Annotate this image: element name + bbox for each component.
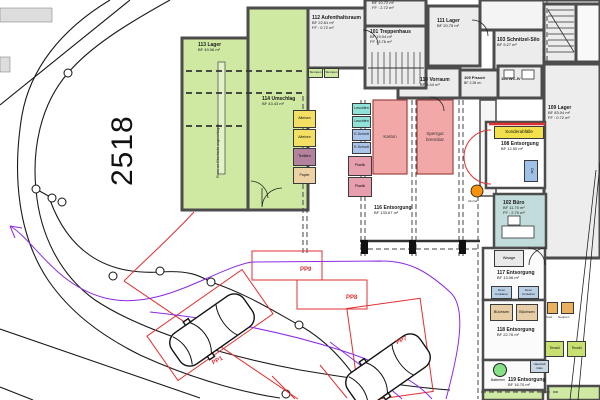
bin-deco-container-1: Deco Container — [491, 286, 512, 299]
room-label-105: 105 Pissoir BF 2.28 m² — [464, 76, 485, 85]
bin-papier: Papier — [293, 167, 316, 184]
floor-plan-canvas: 2518 Rinne an Oberkante angeschlagen 113… — [0, 0, 600, 400]
room-label-118: 118 Entsorgung BF 22.76 m² — [497, 327, 535, 338]
room-label-101: 101 Treppenhaus BF 19.04 m² FF : 3.76 m² — [370, 29, 411, 45]
parking-label-pp8: PP8 — [346, 295, 357, 301]
bin-kork — [547, 302, 558, 314]
room-label-102: 102 Büro BF 11.70 m² FF : 2.70 m² — [503, 200, 525, 216]
room-label-117: 117 Entsorgung BF 13.06 m² — [497, 270, 535, 281]
room-label-103: 103 Schnitzel-Silo BF 9.27 m² — [497, 37, 540, 48]
bin-stumpen-1: Stumpen — [308, 68, 323, 78]
alt-oel-label: Alt-Oel — [468, 199, 477, 203]
bin-alteisen-1: Alteisen — [293, 110, 316, 128]
bin-haushalt-glas: Haushalt Glas — [530, 360, 549, 373]
bin-plastik-2: Plastik — [348, 177, 372, 197]
bin-sonderabfaelle: Sonderabfälle — [494, 126, 544, 139]
room-label-110: 110 Vorraum BF 5.44 m² — [420, 77, 450, 88]
bin-alteisen-2: Alteisen — [293, 129, 316, 147]
bin-neopren-label: Neopren — [558, 315, 570, 319]
room-label-108: 108 Entsorgung BF 12.50 m² — [501, 141, 539, 152]
room-label-116: 116 Entsorgung BF 133.67 m² — [374, 205, 412, 216]
bin-oel: Oel — [524, 160, 538, 182]
gutter-note: Rinne an Oberkante angeschlagen — [216, 66, 220, 178]
room-label-109: 109 Lager BF 83.04 m² FF : 0.72 m² — [548, 105, 571, 121]
bin-buechsen-2: Büchsen — [516, 304, 538, 321]
zone-label-sperrgut: Sperrgut brennbar — [417, 131, 453, 143]
loading-dock — [360, 240, 480, 254]
building-rooms — [182, 0, 600, 400]
room-label-top: BF 10.72 m² FF : 2.72 m² — [372, 1, 394, 11]
room-label-119: 119 Entsorgung BF 16.70 m² — [508, 377, 546, 388]
batterien-point — [493, 363, 507, 377]
waage-platform: Waage — [494, 250, 524, 267]
room-label-111: 111 Lager BF 20.75 m² — [437, 18, 460, 29]
bin-stumpen-2: Stumpen — [324, 68, 339, 78]
room-label-114: 114 Umschlag BF 43.43 m² — [262, 96, 295, 107]
zone-label-karton: Karton — [373, 134, 407, 140]
bin-kork-label: Kork — [546, 315, 552, 319]
bin-textilien: Textilien — [293, 148, 316, 166]
parking-label-pp9: PP9 — [300, 267, 311, 273]
bin-deco-container-2: Deco Container — [518, 286, 539, 299]
bin-leuchten-1: Leuchten — [352, 103, 371, 115]
room-label-113: 113 Lager BF 49.06 m² — [198, 42, 221, 53]
room-label-112: 112 Aufenthaltsraum BF 22.61 m² FF : 0.7… — [312, 15, 361, 31]
batterien-label: Batterien — [491, 378, 505, 382]
bin-plastik-1: Plastik — [348, 156, 372, 176]
bin-eschrott-2: E-Schrott — [352, 142, 371, 154]
room-label-104: 104 WC-IV — [501, 77, 521, 82]
bin-leuchten-2: Leuchten — [352, 116, 371, 128]
car-2 — [339, 326, 437, 400]
bin-texaid-1: Texaid — [545, 341, 564, 357]
bin-buechsen-1: Büchsen — [490, 304, 513, 321]
neighbour-structure — [0, 8, 52, 72]
bin-neopren — [561, 302, 574, 314]
bin-texaid-2: Texaid — [567, 341, 586, 357]
parcel-number: 2518 — [106, 115, 140, 186]
bin-eschrott-1: E-Schrott — [352, 129, 371, 141]
